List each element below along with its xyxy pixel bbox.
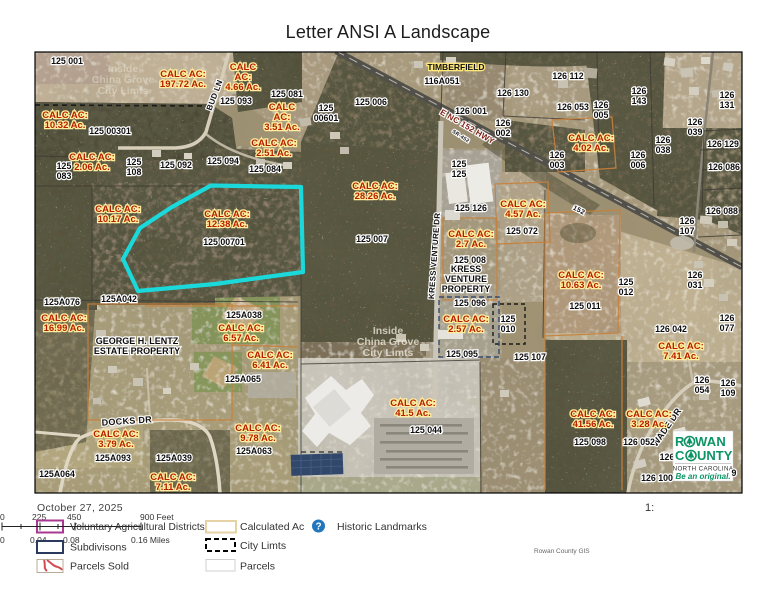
- svg-text:TIMBERFIELD: TIMBERFIELD: [427, 62, 484, 72]
- svg-text:126: 126: [720, 90, 735, 100]
- svg-text:126 130: 126 130: [497, 88, 529, 98]
- svg-text:9: 9: [732, 468, 737, 478]
- svg-text:125 00301: 125 00301: [89, 126, 131, 136]
- svg-text:WAN: WAN: [695, 434, 726, 449]
- svg-text:ESTATE PROPERTY: ESTATE PROPERTY: [94, 346, 180, 356]
- svg-text:Be an original.: Be an original.: [675, 472, 730, 481]
- svg-text:R: R: [675, 434, 685, 449]
- svg-text:125: 125: [452, 169, 467, 179]
- svg-text:4.66 Ac.: 4.66 Ac.: [225, 82, 261, 93]
- svg-text:197.72 Ac.: 197.72 Ac.: [160, 79, 206, 90]
- svg-text:126: 126: [632, 86, 647, 96]
- svg-text:?: ?: [315, 522, 321, 533]
- svg-text:PROPERTY: PROPERTY: [442, 284, 491, 294]
- svg-text:7.41 Ac.: 7.41 Ac.: [663, 351, 699, 362]
- svg-text:0.16 Miles: 0.16 Miles: [131, 535, 170, 545]
- svg-text:126: 126: [720, 313, 735, 323]
- svg-text:126: 126: [695, 375, 710, 385]
- svg-text:012: 012: [619, 287, 634, 297]
- svg-text:2.51 Ac.: 2.51 Ac.: [256, 148, 292, 159]
- svg-text:450: 450: [67, 512, 81, 522]
- svg-text:City Limts: City Limts: [363, 347, 414, 359]
- svg-text:126: 126: [721, 378, 736, 388]
- svg-text:7.11 Ac.: 7.11 Ac.: [155, 482, 190, 493]
- svg-text:125 126: 125 126: [455, 203, 487, 213]
- svg-text:031: 031: [688, 280, 703, 290]
- svg-text:125A039: 125A039: [156, 453, 192, 463]
- svg-text:125: 125: [127, 157, 142, 167]
- svg-text:41.5 Ac.: 41.5 Ac.: [395, 408, 431, 419]
- svg-text:126 129: 126 129: [707, 139, 739, 149]
- svg-text:126: 126: [631, 150, 646, 160]
- svg-text:GEORGE H. LENTZ: GEORGE H. LENTZ: [96, 336, 179, 346]
- svg-text:125 081: 125 081: [271, 89, 303, 99]
- svg-text:125 007: 125 007: [356, 234, 388, 244]
- svg-text:10.32 Ac.: 10.32 Ac.: [45, 120, 86, 131]
- svg-text:126 086: 126 086: [708, 162, 740, 172]
- svg-text:125A063: 125A063: [236, 446, 272, 456]
- svg-text:010: 010: [501, 324, 516, 334]
- svg-text:9.78 Ac.: 9.78 Ac.: [240, 433, 276, 444]
- svg-text:125: 125: [501, 314, 516, 324]
- svg-text:083: 083: [57, 171, 72, 181]
- svg-text:125 006: 125 006: [355, 97, 387, 107]
- svg-text:006: 006: [631, 160, 646, 170]
- svg-text:Historic Landmarks: Historic Landmarks: [337, 521, 427, 533]
- svg-text:126 053: 126 053: [557, 102, 589, 112]
- svg-text:125 011: 125 011: [569, 301, 600, 311]
- svg-text:Calculated Ac: Calculated Ac: [240, 521, 304, 533]
- svg-text:125A076: 125A076: [44, 297, 80, 307]
- svg-text:126 042: 126 042: [655, 324, 687, 334]
- svg-text:125: 125: [319, 103, 334, 113]
- svg-text:City Limts: City Limts: [98, 85, 149, 97]
- svg-text:126: 126: [688, 117, 703, 127]
- svg-text:6.41 Ac.: 6.41 Ac.: [252, 360, 288, 371]
- svg-text:126 052: 126 052: [623, 437, 655, 447]
- svg-text:126: 126: [688, 270, 703, 280]
- svg-text:125 094: 125 094: [207, 156, 239, 166]
- svg-text:10.63 Ac.: 10.63 Ac.: [561, 280, 602, 291]
- svg-text:125A065: 125A065: [225, 374, 261, 384]
- svg-text:125 044: 125 044: [410, 425, 442, 435]
- svg-text:28.26 Ac.: 28.26 Ac.: [355, 191, 396, 202]
- svg-text:125: 125: [619, 277, 634, 287]
- svg-text:City Limts: City Limts: [240, 540, 286, 552]
- svg-text:125 098: 125 098: [574, 437, 606, 447]
- svg-text:039: 039: [688, 127, 703, 137]
- svg-text:125 001: 125 001: [51, 56, 83, 66]
- svg-text:108: 108: [127, 167, 142, 177]
- svg-text:126 112: 126 112: [552, 71, 583, 81]
- svg-text:143: 143: [632, 96, 647, 106]
- svg-text:00601: 00601: [314, 113, 339, 123]
- svg-text:41.56 Ac.: 41.56 Ac.: [573, 419, 614, 430]
- svg-text:038: 038: [656, 145, 671, 155]
- svg-text:107: 107: [680, 226, 695, 236]
- svg-text:125 00701: 125 00701: [203, 237, 245, 247]
- svg-text:109: 109: [721, 388, 736, 398]
- svg-text:125 096: 125 096: [454, 298, 486, 308]
- svg-text:125A042: 125A042: [101, 294, 137, 304]
- svg-text:125 092: 125 092: [160, 160, 192, 170]
- svg-text:125 084: 125 084: [249, 164, 281, 174]
- svg-text:054: 054: [695, 385, 710, 395]
- svg-text:126: 126: [680, 216, 695, 226]
- svg-text:125 107: 125 107: [514, 352, 546, 362]
- svg-text:126: 126: [496, 118, 511, 128]
- svg-text:077: 077: [720, 323, 735, 333]
- svg-text:126 088: 126 088: [706, 206, 738, 216]
- svg-text:126: 126: [660, 452, 675, 462]
- svg-text:125 072: 125 072: [506, 226, 538, 236]
- svg-text:126 100: 126 100: [641, 473, 673, 483]
- svg-text:2.06 Ac.: 2.06 Ac.: [74, 162, 110, 173]
- svg-text:4.57 Ac.: 4.57 Ac.: [505, 209, 541, 220]
- svg-text:002: 002: [496, 128, 511, 138]
- svg-text:126 001: 126 001: [455, 106, 487, 116]
- svg-text:125A064: 125A064: [39, 469, 75, 479]
- svg-text:126: 126: [550, 150, 565, 160]
- svg-text:2.57 Ac.: 2.57 Ac.: [448, 324, 484, 335]
- svg-text:3.79 Ac.: 3.79 Ac.: [98, 439, 134, 450]
- svg-text:2.7 Ac.: 2.7 Ac.: [456, 239, 486, 250]
- svg-text:Voluntary Agricultural Distric: Voluntary Agricultural Districts: [70, 522, 205, 533]
- svg-text:10.17 Ac.: 10.17 Ac.: [98, 214, 139, 225]
- svg-text:UNTY: UNTY: [697, 448, 733, 463]
- svg-text:005: 005: [594, 110, 609, 120]
- svg-text:6.57 Ac.: 6.57 Ac.: [223, 333, 259, 344]
- svg-text:16.99 Ac.: 16.99 Ac.: [44, 323, 85, 334]
- svg-text:0: 0: [0, 535, 5, 545]
- svg-text:Parcels Sold: Parcels Sold: [70, 561, 129, 573]
- svg-text:126: 126: [656, 135, 671, 145]
- svg-text:131: 131: [720, 100, 735, 110]
- svg-text:116A051: 116A051: [424, 76, 459, 86]
- svg-text:Subdivisons: Subdivisons: [70, 542, 127, 554]
- svg-text:12.38 Ac.: 12.38 Ac.: [207, 219, 248, 230]
- svg-text:Parcels: Parcels: [240, 561, 275, 573]
- svg-text:003: 003: [550, 160, 565, 170]
- svg-text:125A038: 125A038: [226, 310, 262, 320]
- svg-text:125 095: 125 095: [446, 349, 478, 359]
- svg-text:VENTURE: VENTURE: [445, 274, 487, 284]
- svg-text:3.28 Ac.: 3.28 Ac.: [631, 419, 667, 430]
- svg-text:125 093: 125 093: [220, 96, 252, 106]
- svg-text:0: 0: [0, 512, 5, 522]
- svg-text:125A093: 125A093: [95, 453, 131, 463]
- svg-text:125: 125: [452, 159, 467, 169]
- svg-text:1:: 1:: [645, 502, 654, 514]
- svg-text:4.02 Ac.: 4.02 Ac.: [573, 143, 609, 154]
- svg-text:900 Feet: 900 Feet: [140, 512, 174, 522]
- svg-text:C: C: [675, 448, 685, 463]
- svg-text:3.51 Ac.: 3.51 Ac.: [264, 122, 300, 133]
- svg-text:126: 126: [594, 100, 609, 110]
- svg-text:Rowan County GIS: Rowan County GIS: [534, 548, 590, 555]
- svg-text:KRESS: KRESS: [451, 264, 481, 274]
